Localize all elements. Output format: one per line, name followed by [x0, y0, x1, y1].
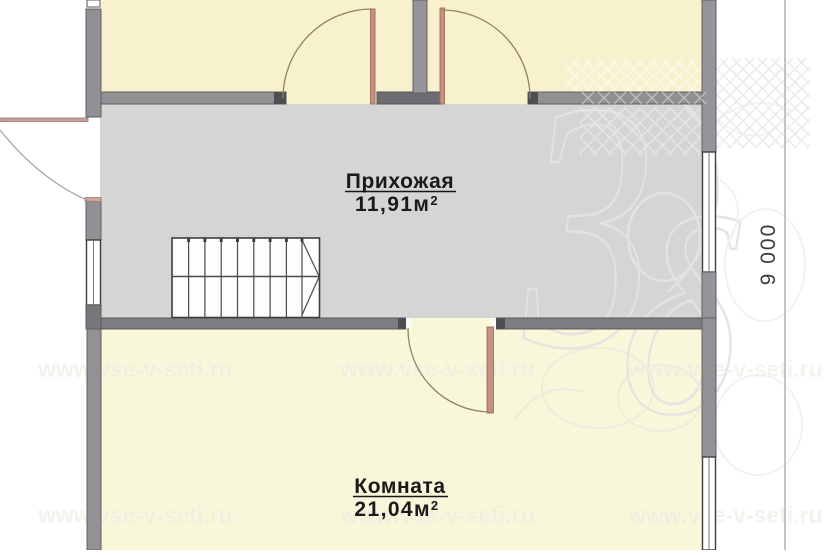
svg-text:www.vse-v-seti.ru: www.vse-v-seti.ru — [627, 502, 823, 528]
svg-text:www.vse-v-seti.ru: www.vse-v-seti.ru — [37, 356, 233, 382]
svg-text:www.vse-v-seti.ru: www.vse-v-seti.ru — [627, 356, 823, 382]
svg-text:Комната: Комната — [354, 475, 445, 498]
svg-text:9 000: 9 000 — [757, 223, 780, 286]
svg-text:www.vse-v-seti.ru: www.vse-v-seti.ru — [37, 502, 233, 528]
svg-text:21,04м2: 21,04м2 — [354, 498, 439, 521]
svg-text:Прихожая: Прихожая — [346, 170, 454, 193]
svg-text:www.vse-v-seti.ru: www.vse-v-seti.ru — [339, 356, 535, 382]
svg-text:11,91м2: 11,91м2 — [355, 193, 439, 216]
